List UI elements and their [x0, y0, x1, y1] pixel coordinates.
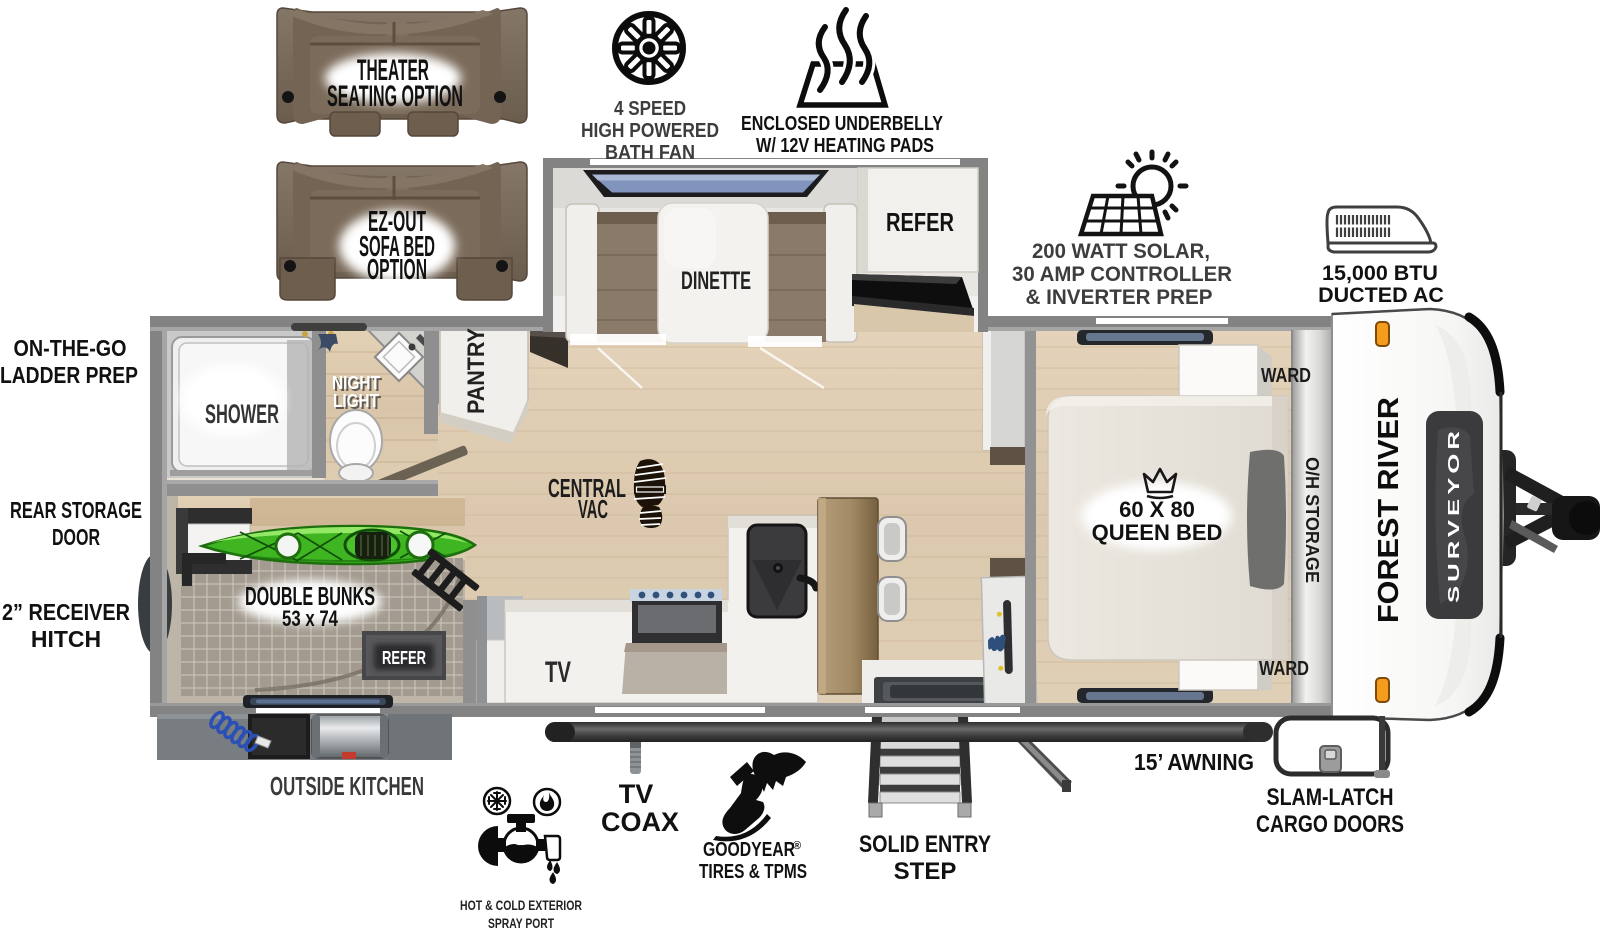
svg-text:REAR STORAGE: REAR STORAGE — [10, 497, 142, 523]
svg-text:®: ® — [793, 840, 801, 852]
svg-text:DINETTE: DINETTE — [681, 267, 751, 295]
svg-text:SOLID ENTRY: SOLID ENTRY — [859, 831, 991, 858]
svg-text:OUTSIDE KITCHEN: OUTSIDE KITCHEN — [270, 771, 424, 801]
svg-text:FOREST RIVER: FOREST RIVER — [1373, 397, 1405, 623]
svg-text:53 x 74: 53 x 74 — [282, 606, 339, 631]
svg-text:COAX: COAX — [601, 807, 679, 837]
svg-text:WARD: WARD — [1261, 365, 1311, 387]
svg-text:SEATING OPTION: SEATING OPTION — [327, 80, 463, 113]
svg-text:W/ 12V HEATING PADS: W/ 12V HEATING PADS — [756, 134, 934, 157]
svg-text:REFER: REFER — [886, 207, 954, 237]
svg-text:LIGHT: LIGHT — [333, 391, 379, 411]
svg-text:CARGO DOORS: CARGO DOORS — [1256, 811, 1404, 838]
svg-text:BATH FAN: BATH FAN — [605, 142, 695, 164]
svg-text:& INVERTER PREP: & INVERTER PREP — [1026, 285, 1213, 309]
svg-text:O/H STORAGE: O/H STORAGE — [1302, 457, 1322, 583]
svg-text:PANTRY: PANTRY — [463, 328, 490, 414]
svg-text:60 X 80: 60 X 80 — [1119, 497, 1195, 522]
svg-text:SPRAY PORT: SPRAY PORT — [488, 916, 555, 930]
svg-text:15’ AWNING: 15’ AWNING — [1134, 749, 1254, 775]
svg-text:HIGH POWERED: HIGH POWERED — [581, 120, 719, 142]
svg-text:4 SPEED: 4 SPEED — [614, 98, 686, 120]
svg-text:WARD: WARD — [1259, 658, 1309, 680]
svg-text:NIGHT: NIGHT — [332, 373, 380, 393]
svg-text:DOOR: DOOR — [52, 524, 100, 550]
svg-text:200 WATT SOLAR,: 200 WATT SOLAR, — [1032, 239, 1210, 263]
svg-text:DUCTED AC: DUCTED AC — [1318, 283, 1444, 307]
svg-text:ENCLOSED UNDERBELLY: ENCLOSED UNDERBELLY — [741, 112, 943, 135]
svg-text:REFER: REFER — [382, 648, 426, 668]
svg-text:ON-THE-GO: ON-THE-GO — [14, 335, 127, 361]
svg-text:SURVEYOR: SURVEYOR — [1446, 427, 1463, 603]
svg-text:GOODYEAR: GOODYEAR — [703, 839, 795, 861]
svg-text:QUEEN BED: QUEEN BED — [1092, 520, 1223, 545]
svg-text:LADDER PREP: LADDER PREP — [0, 362, 138, 388]
svg-text:TV: TV — [545, 656, 571, 689]
svg-text:30 AMP CONTROLLER: 30 AMP CONTROLLER — [1012, 262, 1232, 286]
svg-text:TV: TV — [619, 779, 654, 809]
svg-text:SHOWER: SHOWER — [205, 399, 279, 429]
svg-text:15,000 BTU: 15,000 BTU — [1322, 261, 1438, 285]
svg-text:OPTION: OPTION — [367, 254, 427, 286]
svg-text:VAC: VAC — [578, 494, 608, 524]
svg-text:STEP: STEP — [894, 858, 957, 885]
svg-text:2” RECEIVER: 2” RECEIVER — [2, 599, 130, 625]
svg-text:HOT & COLD EXTERIOR: HOT & COLD EXTERIOR — [460, 898, 582, 913]
svg-text:TIRES & TPMS: TIRES & TPMS — [699, 861, 807, 883]
svg-text:HITCH: HITCH — [31, 626, 101, 652]
svg-text:SLAM-LATCH: SLAM-LATCH — [1267, 784, 1394, 811]
